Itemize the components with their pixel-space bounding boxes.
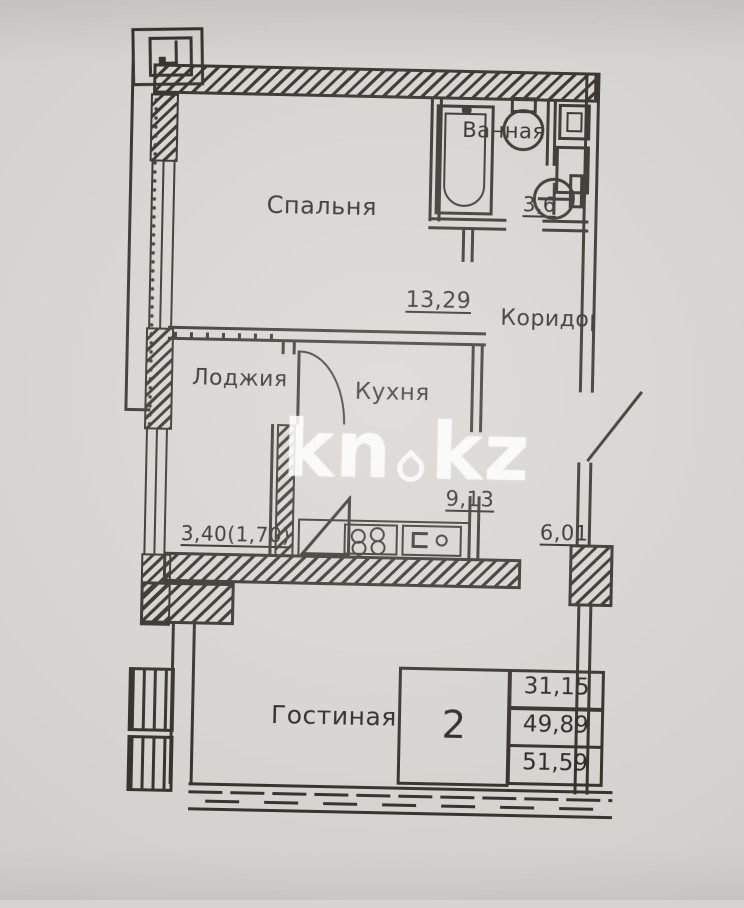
oven-knob bbox=[436, 534, 448, 546]
stove-burner bbox=[370, 540, 385, 555]
oven bbox=[401, 525, 462, 557]
stamp-living-area: 31,15 bbox=[508, 669, 605, 711]
washing-machine-inner bbox=[566, 112, 582, 132]
stamp-total-with-loggia: 51,59 bbox=[507, 744, 604, 787]
stamp-total-area: 49,89 bbox=[507, 707, 604, 749]
room-label-corridor: Коридор bbox=[500, 306, 596, 333]
radiator-lower bbox=[126, 735, 173, 792]
stamp-rooms-count: 2 bbox=[397, 667, 511, 787]
living-area-value: 31,15 bbox=[523, 673, 589, 700]
bathtub bbox=[435, 104, 495, 215]
bathtub-inner bbox=[443, 112, 487, 207]
oven-bracket bbox=[412, 532, 428, 548]
bottom-wall bbox=[188, 782, 612, 819]
right-wall-pier bbox=[568, 544, 613, 607]
watermark-left: kn bbox=[282, 404, 393, 496]
left-step-block bbox=[140, 581, 235, 625]
room-area-corridor: 6,01 bbox=[540, 521, 589, 546]
watermark-right: kz bbox=[430, 407, 531, 499]
bathroom-bottom-wall-right bbox=[542, 220, 588, 233]
floor-plan: Спальня Ванная 3,6 13,29 Коридор Лоджия … bbox=[0, 0, 744, 908]
loggia-window bbox=[143, 429, 168, 553]
entrance-door-leaf bbox=[586, 391, 643, 462]
stove bbox=[343, 523, 398, 555]
washing-machine bbox=[558, 104, 591, 141]
radiator-upper bbox=[128, 667, 175, 732]
room-label-bedroom: Спальня bbox=[266, 192, 377, 222]
room-area-bedroom: 13,29 bbox=[405, 288, 471, 315]
stove-burner bbox=[351, 541, 366, 556]
toilet-tank bbox=[569, 174, 584, 208]
room-label-kitchen: Кухня bbox=[355, 379, 430, 407]
rooms-count-value: 2 bbox=[441, 703, 466, 747]
room-label-living: Гостиная bbox=[271, 701, 397, 732]
loggia-partition-stub bbox=[282, 342, 296, 354]
total-with-loggia-value: 51,59 bbox=[522, 749, 588, 776]
room-label-loggia: Лоджия bbox=[192, 365, 288, 392]
water-drop-icon bbox=[392, 449, 430, 487]
left-outer-line bbox=[124, 55, 134, 411]
sink-basin bbox=[502, 109, 545, 152]
corridor-wall-upper bbox=[462, 228, 475, 262]
total-area-value: 49,89 bbox=[523, 711, 589, 738]
watermark: knkz bbox=[282, 404, 532, 499]
